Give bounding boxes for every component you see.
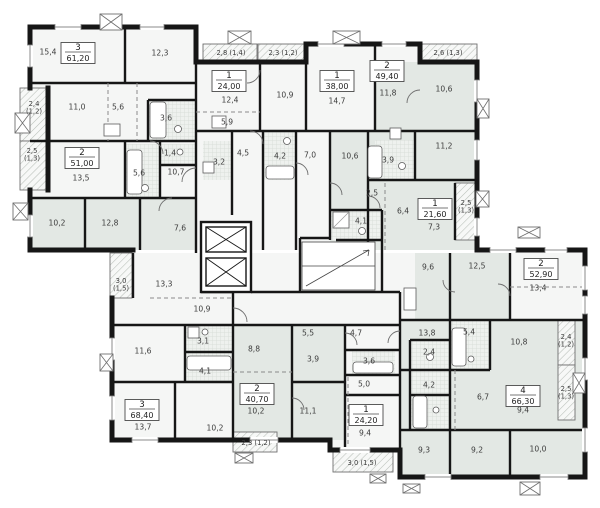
apartment-area: 24,00	[218, 82, 241, 91]
sink-icon	[433, 407, 439, 413]
apartment-rooms-count: 2	[254, 384, 259, 394]
balcony-label: (1,5)	[113, 285, 129, 293]
room-area-label: 7,0	[304, 151, 316, 160]
room-area-label: 12,3	[152, 49, 169, 58]
apartment-rooms-count: 3	[75, 43, 80, 53]
apartment-area: 61,20	[67, 54, 90, 63]
washer-icon	[390, 128, 401, 139]
toilet-icon	[359, 228, 366, 235]
vent-marker-icon	[228, 31, 251, 44]
apartment-rooms-count: 1	[334, 71, 339, 81]
room-area-label: 12,4	[222, 96, 239, 105]
room-area-label: 4,5	[237, 149, 249, 158]
balcony-label: 3,0 (1,5)	[347, 459, 376, 467]
apartment-tag: 361,20	[61, 43, 95, 64]
room-area-label: 5,6	[112, 103, 124, 112]
room-area-label: 10,9	[194, 305, 211, 314]
apartment-tag: 466,30	[506, 386, 540, 407]
room-area-label: 10,8	[511, 338, 528, 347]
sink-icon	[202, 329, 208, 335]
room-area-label: 10,6	[342, 152, 359, 161]
balcony-label: 2,3 (1,2)	[241, 439, 270, 447]
room-area-label: 11,0	[69, 103, 86, 112]
room-area-label: 15,4	[40, 48, 57, 57]
vent-marker-icon	[518, 227, 540, 238]
room-area-label: 5,9	[221, 118, 233, 127]
bathtub-icon	[266, 166, 294, 179]
balcony-label: 2,6 (1,3)	[433, 49, 462, 57]
floor-plan-svg: 15,412,311,05,63,61,413,55,610,710,212,8…	[0, 0, 600, 508]
apartment-rooms-count: 4	[520, 386, 525, 396]
room-area-label: 6,7	[477, 393, 489, 402]
apartment-tag: 121,60	[418, 199, 452, 220]
balcony-label: (1,3)	[24, 155, 40, 163]
room-area-label: 3,9	[382, 156, 394, 165]
room-area-label: 3,1	[197, 337, 209, 346]
room-area-label: 9,6	[422, 263, 434, 272]
room-area-label: 14,7	[329, 97, 346, 106]
room-area-label: 10,6	[436, 85, 453, 94]
balcony-label: 2,3 (1,2)	[268, 49, 297, 57]
room-area-label: 13,5	[73, 174, 90, 183]
apartment-rooms-count: 2	[538, 259, 543, 269]
room-area-label: 10,2	[248, 407, 265, 416]
vent-marker-icon	[13, 203, 28, 220]
room-area-label: 9,2	[471, 446, 483, 455]
room-area-label: 13,8	[419, 329, 436, 338]
room-area-label: 4,1	[199, 367, 211, 376]
apartment-tag: 368,40	[125, 400, 159, 421]
apartment-tag: 138,00	[320, 71, 354, 92]
room-area-label: 3,6	[363, 357, 375, 366]
room-area-label: 11,1	[300, 407, 317, 416]
staircase	[302, 242, 375, 290]
kitchen-unit-icon	[404, 288, 416, 310]
vent-marker-icon	[100, 354, 113, 371]
room-area-label: 4,1	[355, 217, 367, 226]
vent-marker-icon	[520, 482, 540, 495]
bathtub-icon	[413, 396, 427, 428]
room-area-label: 10,2	[49, 219, 66, 228]
room-area-label: 2,4	[423, 348, 435, 357]
balcony-label: (1,2)	[26, 108, 42, 116]
stove-icon	[104, 124, 120, 136]
room-area-label: 2,5	[366, 189, 378, 198]
sink-icon	[399, 163, 406, 170]
apartment-area: 38,00	[326, 82, 349, 91]
room-area-label: 12,8	[102, 219, 119, 228]
vent-marker-icon	[100, 14, 122, 30]
apartment-tag: 251,00	[65, 148, 99, 169]
apartment-area: 66,30	[512, 397, 535, 406]
room-area-label: 7,6	[174, 224, 186, 233]
room-area-label: 5,4	[463, 328, 475, 337]
balcony-label: (1,3)	[458, 207, 474, 215]
room-area-label: 6,4	[397, 207, 409, 216]
apartment-area: 40,70	[246, 395, 269, 404]
room-area-label: 4,2	[423, 381, 435, 390]
vent-marker-icon	[333, 31, 360, 44]
room-area-label: 13,7	[135, 423, 152, 432]
apartment-tag: 124,00	[212, 71, 246, 92]
room-area-label: 1,4	[164, 149, 176, 158]
room-area-label: 11,8	[380, 89, 397, 98]
room-area-label: 11,6	[135, 347, 152, 356]
room-area-label: 5,5	[302, 329, 314, 338]
balcony-label: (1,3)	[558, 393, 574, 401]
apartment-rooms-count: 2	[79, 148, 84, 158]
room-area-label: 11,2	[436, 142, 453, 151]
bathtub-icon	[368, 146, 382, 178]
vent-marker-icon	[403, 484, 420, 493]
room-area-label: 3,2	[213, 158, 225, 167]
room-area-label: 3,6	[160, 114, 172, 123]
apartment-rooms-count: 1	[226, 71, 231, 81]
room-area-label: 5,6	[133, 169, 145, 178]
room-area-label: 4,7	[350, 329, 362, 338]
apartment-rooms-count: 1	[363, 405, 368, 415]
floor-plan-page: 15,412,311,05,63,61,413,55,610,710,212,8…	[0, 0, 600, 508]
apartment-area: 51,00	[71, 159, 94, 168]
apartment-tag: 124,20	[349, 405, 383, 426]
room-area-label: 13,4	[530, 284, 547, 293]
apartment-rooms-count: 3	[139, 400, 144, 410]
elevator-shafts	[201, 222, 251, 292]
vent-marker-icon	[573, 373, 585, 393]
vent-marker-icon	[477, 99, 489, 118]
sink-icon	[468, 356, 474, 362]
room-area-label: 9,3	[418, 446, 430, 455]
apartment-tag: 252,90	[524, 259, 558, 280]
room-area-label: 5,0	[358, 380, 370, 389]
balcony-label: (1,2)	[558, 341, 574, 349]
apartment-area: 52,90	[530, 270, 553, 279]
toilet-icon	[175, 126, 182, 133]
sink-icon	[142, 185, 149, 192]
toilet-icon	[177, 149, 183, 155]
room-area-label: 10,2	[207, 424, 224, 433]
room-area-label: 9,4	[359, 429, 371, 438]
apartment-area: 49,40	[376, 72, 399, 81]
room-area-label: 10,7	[168, 168, 185, 177]
apartment-tag: 240,70	[240, 384, 274, 405]
vent-marker-icon	[476, 191, 489, 207]
room-area-label: 10,0	[530, 445, 547, 454]
room-area-label: 12,5	[469, 262, 486, 271]
room-area-label: 13,3	[156, 280, 173, 289]
room-area-label: 4,2	[274, 152, 286, 161]
apartment-tag: 249,40	[370, 61, 404, 82]
vent-marker-icon	[235, 453, 253, 463]
apartment-rooms-count: 2	[384, 61, 389, 71]
sink-icon	[284, 138, 291, 145]
room-area-label: 10,9	[277, 91, 294, 100]
apartment-rooms-count: 1	[432, 199, 437, 209]
apartment-area: 68,40	[131, 411, 154, 420]
apartment-area: 21,60	[424, 210, 447, 219]
apartment-area: 24,20	[355, 416, 378, 425]
room-area-label: 7,3	[428, 223, 440, 232]
balcony-label: 2,8 (1,4)	[216, 49, 245, 57]
room-area-label: 8,8	[248, 345, 260, 354]
vent-marker-icon	[370, 474, 386, 483]
vent-marker-icon	[15, 113, 30, 133]
room-area-label: 3,9	[307, 355, 319, 364]
